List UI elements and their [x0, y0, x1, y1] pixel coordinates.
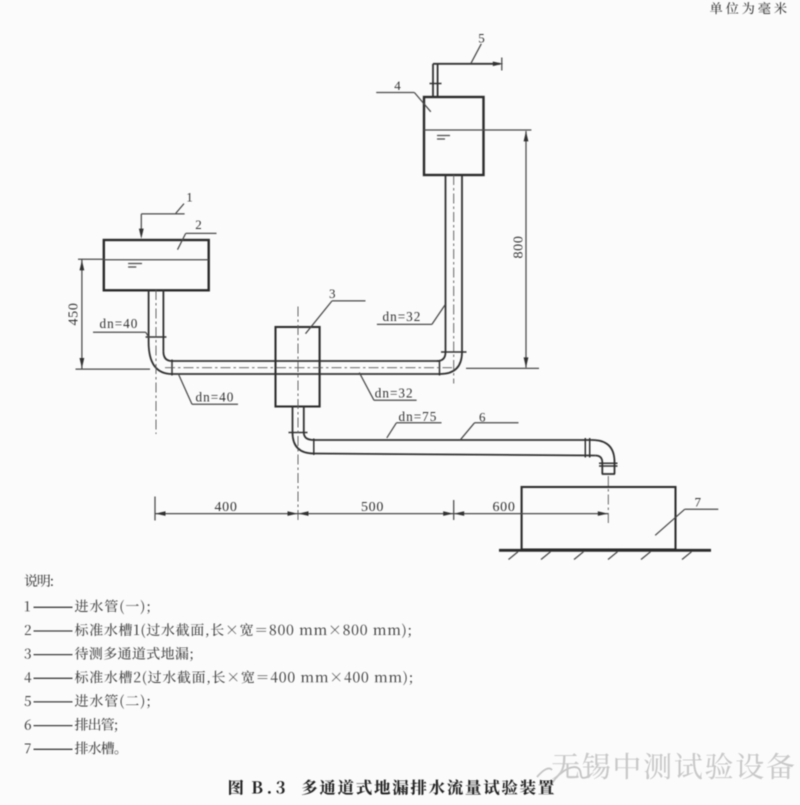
svg-text:3: 3	[329, 286, 336, 301]
svg-text:7: 7	[695, 495, 702, 510]
svg-text:1: 1	[186, 190, 193, 205]
svg-text:dn=32: dn=32	[375, 385, 414, 400]
svg-text:800: 800	[511, 235, 526, 258]
svg-text:2: 2	[195, 217, 202, 232]
svg-text:4: 4	[394, 78, 401, 93]
svg-text:6: 6	[479, 410, 486, 425]
svg-text:dn=40: dn=40	[100, 316, 139, 331]
svg-text:600: 600	[492, 500, 515, 515]
svg-text:400: 400	[214, 500, 237, 515]
svg-text:dn=40: dn=40	[196, 390, 235, 405]
svg-text:500: 500	[361, 500, 384, 515]
svg-text:5: 5	[478, 30, 485, 45]
svg-text:450: 450	[66, 302, 81, 325]
svg-text:dn=32: dn=32	[383, 309, 422, 324]
svg-text:dn=75: dn=75	[399, 409, 438, 424]
